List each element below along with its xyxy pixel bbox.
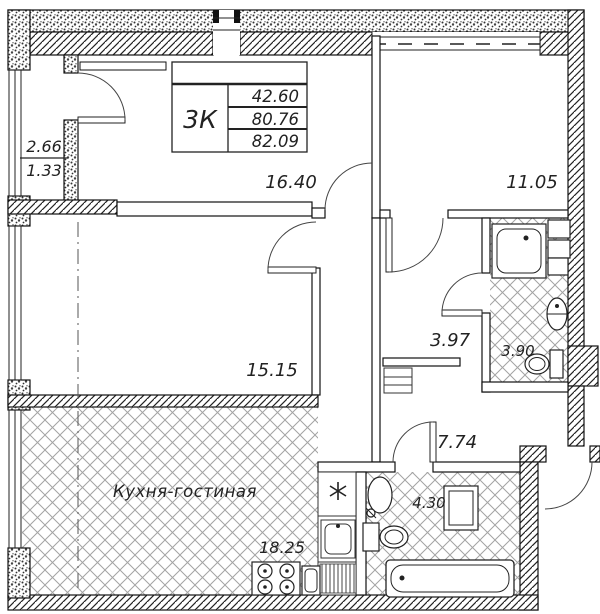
room-top-right-area-label: 11.05 [506,172,558,193]
title-block: 3К 42.60 80.76 82.09 [172,62,307,152]
washing-machine-icon [444,486,478,530]
bathroom-bottom-top-wall-a [318,462,395,472]
bathroom-top-bottom-wall [482,382,568,392]
wall-room2-hall-right [448,210,568,218]
room-middle-area-label: 15.15 [246,360,298,381]
wardrobe [384,368,412,393]
bathroom-top-left-wall-b [482,313,490,392]
hall-small-area-label: 3.97 [430,330,471,351]
entry-wall-left [520,446,546,462]
hallway-area-label: 7.74 [437,432,477,453]
balcony-wall-lower [64,120,78,205]
right-wall-lower [568,386,584,446]
kitchen-name-label: Кухня-гостиная [113,482,257,501]
wall-room2-hall-left [380,210,390,218]
kitchen-fixtures [252,562,320,595]
floorplan-svg: 2.66 1.33 16.40 11.05 15.15 3.97 3.90 7.… [0,0,600,614]
entry-wall-right [590,446,600,462]
niche-shaft-hatch [320,564,356,593]
right-wall-upper [568,10,584,386]
hall-bottom-wall [383,358,460,366]
right-wall-shaft-bump [568,346,598,386]
bathroom-top-area-label: 3.90 [501,342,534,360]
top-wall-hatch-left [30,32,213,55]
door-room-middle [268,222,316,273]
balcony-sill-wall [8,200,117,214]
sink-icon-top [547,298,567,330]
door-bathroom-top [442,273,482,316]
wall-room1-room2 [372,36,380,218]
door-balcony [78,73,125,123]
shower-tray-icon [492,224,546,278]
window-top [372,32,540,55]
kitchen-utility-niche [318,472,356,595]
kitchen-sink-icon [321,520,355,558]
bottom-left-corner [8,548,30,598]
balcony-wall-upper [64,55,78,73]
total-area-value: 82.09 [252,132,299,151]
door-room-top-left [325,163,372,210]
floor-plan: 2.66 1.33 16.40 11.05 15.15 3.97 3.90 7.… [0,0,600,614]
top-wall-mullion [213,10,240,55]
closet-lintel [80,62,166,70]
corridor-top-stub [312,208,325,218]
bathroom-bottom-top-wall-b [433,462,520,472]
bathroom-top-left-wall-a [482,218,490,273]
kitchen-area-label: 18.25 [259,538,305,557]
room-top-left-area-label: 16.40 [265,172,317,193]
wall-room3-kitchen [8,395,318,407]
bathtub-icon [386,560,514,597]
corridor-right-wall [372,218,380,462]
flat-type-label: 3К [183,105,218,134]
door-room-top-right [386,218,443,272]
wall-room1-room3 [117,202,312,216]
bathroom-bottom-area-label: 4.30 [412,494,445,512]
window-left-1 [9,70,21,196]
balcony-area-label: 2.66 [26,137,62,156]
door-bathroom-bottom [393,422,436,462]
stove-icon [252,562,300,595]
corridor-left-wall [312,268,320,395]
top-wall-hatch-mid [240,32,372,55]
top-left-corner [8,10,30,70]
floor-area-value: 80.76 [252,110,299,129]
window-left-2 [9,226,21,380]
living-area-value: 42.60 [252,87,299,106]
window-left-3 [9,410,21,548]
bathroom-bottom-right-wall [520,462,538,610]
entrance-door-arc [545,462,592,509]
balcony-reduced-label: 1.33 [26,161,62,180]
kitchen-basin-icon [302,566,320,595]
top-wall-stipple [8,10,584,32]
bathroom-cabinet-icon [548,220,570,275]
